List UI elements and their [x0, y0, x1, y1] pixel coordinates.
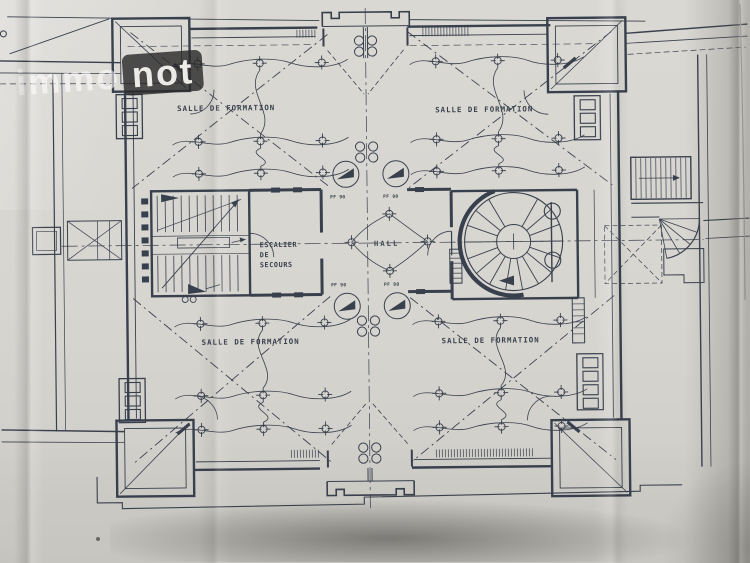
plan-line	[594, 190, 595, 298]
plan-line	[2, 429, 125, 433]
plan-line	[128, 45, 316, 47]
wall-hatch	[141, 224, 148, 230]
door-swing-arc	[193, 396, 217, 420]
column	[367, 36, 376, 45]
plan-line	[452, 298, 578, 299]
plan-line	[451, 190, 577, 191]
interior-wall	[249, 190, 321, 191]
plan-line	[62, 73, 66, 431]
plan-line	[371, 402, 407, 444]
emergency-staircase	[141, 193, 250, 303]
interior-wall	[250, 295, 322, 296]
wall-hatch	[142, 237, 149, 243]
label-escalier-line3: SECOURS	[260, 261, 293, 269]
column	[355, 142, 364, 151]
column	[370, 316, 379, 325]
room-diagonal	[133, 296, 332, 462]
label-salle-formation-br: SALLE DE FORMATION	[442, 335, 540, 345]
doors-and-columns	[331, 36, 411, 464]
column	[370, 327, 379, 336]
wall-hatch	[141, 211, 148, 217]
plan-line	[152, 253, 250, 254]
pilaster	[574, 96, 600, 140]
room-diagonal	[410, 295, 616, 461]
plan-line	[206, 285, 220, 289]
arrow-head	[231, 199, 239, 207]
door-leaf	[388, 300, 405, 311]
watermark-text-dark: not	[122, 50, 205, 97]
plan-line	[706, 236, 750, 238]
label-salle-formation-bl: SALLE DE FORMATION	[202, 337, 300, 347]
wall-hatch	[141, 198, 148, 204]
plan-line	[414, 458, 553, 459]
plan-line	[625, 36, 747, 43]
pilaster-panel	[580, 113, 595, 123]
column	[354, 36, 363, 45]
room-labels: SALLE DE FORMATION SALLE DE FORMATION SA…	[177, 100, 540, 348]
plan-line	[327, 481, 414, 482]
outer-wall	[412, 466, 553, 467]
door-leaf	[387, 168, 404, 179]
right-boundary-wall	[698, 55, 702, 467]
plan-line	[409, 34, 548, 35]
plan-line	[610, 94, 613, 418]
outer-wall	[189, 28, 317, 29]
paper-curl-edge	[740, 4, 745, 300]
plan-line	[9, 19, 109, 54]
label-door-pf90-tl: PF 90	[330, 194, 345, 200]
wiring	[497, 400, 506, 420]
column	[359, 443, 368, 452]
plan-line	[555, 422, 628, 493]
column	[182, 296, 188, 302]
plan-line	[551, 202, 552, 282]
wall-hatch	[272, 292, 281, 297]
plan-line	[152, 235, 250, 236]
right-wing-wall	[625, 24, 747, 33]
pilaster-panel	[583, 371, 598, 381]
label-door-pf90-bl: PF 90	[331, 282, 346, 288]
plan-line	[328, 50, 364, 94]
room-diagonal	[410, 295, 616, 461]
column	[357, 327, 366, 336]
wall-hatch	[293, 187, 302, 192]
plan-line	[659, 219, 697, 233]
spiral-tread	[505, 258, 511, 290]
outer-wall	[407, 25, 550, 26]
column	[357, 316, 366, 325]
pilaster	[116, 94, 142, 138]
plan-line	[157, 199, 241, 230]
pilaster-panel	[580, 100, 595, 110]
plan-line	[577, 190, 578, 298]
plan-line	[196, 461, 320, 462]
outer-wall	[194, 469, 320, 470]
label-hall: HALL	[374, 239, 399, 248]
wall-hatch	[142, 263, 149, 269]
wall-hatch	[271, 187, 280, 192]
center-axis	[365, 8, 370, 508]
pilaster-panel	[583, 398, 598, 408]
entrance-porch-top	[322, 12, 409, 27]
pilaster-panel	[580, 127, 595, 137]
label-salle-formation-tr: SALLE DE FORMATION	[435, 104, 533, 114]
survey-point	[0, 31, 6, 37]
plan-line	[631, 203, 703, 204]
label-escalier-line2: DE	[260, 251, 269, 259]
spiral-staircase	[449, 190, 563, 296]
spiral-tread	[529, 224, 559, 235]
room-diagonal	[133, 296, 332, 464]
label-salle-formation-tl: SALLE DE FORMATION	[177, 103, 275, 113]
wiring	[494, 146, 503, 164]
entrance-porch-bottom	[327, 481, 414, 496]
wiring	[259, 402, 268, 422]
column	[354, 47, 363, 56]
landing-platform	[664, 249, 704, 283]
wiring	[256, 148, 265, 166]
label-escalier-line1: ESCALIER	[260, 241, 298, 249]
wall-hatch	[416, 289, 425, 294]
watermark-text-light: immo	[15, 55, 122, 103]
plan-line	[707, 55, 711, 467]
spiral-tread	[467, 225, 497, 236]
outer-wall	[125, 91, 128, 421]
plan-line	[550, 20, 623, 89]
column	[369, 153, 378, 162]
wiring	[389, 213, 427, 241]
outer-wall	[618, 91, 621, 419]
wall-hatch	[142, 276, 149, 282]
wall-hatch	[294, 292, 303, 297]
floor-plan-photo: SALLE DE FORMATION SALLE DE FORMATION SA…	[0, 0, 750, 563]
column	[372, 454, 381, 463]
pilaster-panel	[583, 358, 598, 368]
pilaster	[119, 378, 145, 422]
stair-marker	[161, 194, 179, 202]
column	[359, 454, 368, 463]
wall-hatch	[415, 187, 424, 192]
plan-line	[133, 93, 136, 419]
wall-hatch	[142, 250, 149, 256]
column	[367, 47, 376, 56]
plan-line	[659, 219, 690, 245]
plan-line	[410, 44, 598, 46]
label-door-pf90-br: PF 90	[384, 282, 399, 288]
arrow-head	[240, 237, 246, 242]
column	[372, 443, 381, 452]
plan-line	[628, 47, 746, 54]
column	[368, 142, 377, 151]
left-boundary-wall	[53, 73, 57, 431]
dust-speck	[96, 537, 100, 541]
arrow-head	[673, 175, 680, 181]
label-door-pf90-tr: PF 90	[383, 194, 398, 200]
plan-line	[703, 218, 749, 220]
stair-landing-label-box	[178, 238, 230, 249]
stair-marker	[188, 284, 206, 294]
plan-line	[2, 441, 125, 444]
spiral-tread	[468, 248, 498, 259]
door-leaf	[338, 300, 355, 311]
plan-line	[322, 26, 409, 27]
spiral-tread	[517, 258, 523, 290]
column	[356, 153, 365, 162]
plan-line	[331, 402, 367, 444]
plan-line	[36, 231, 56, 250]
ground-line	[97, 471, 682, 509]
column	[190, 296, 196, 302]
